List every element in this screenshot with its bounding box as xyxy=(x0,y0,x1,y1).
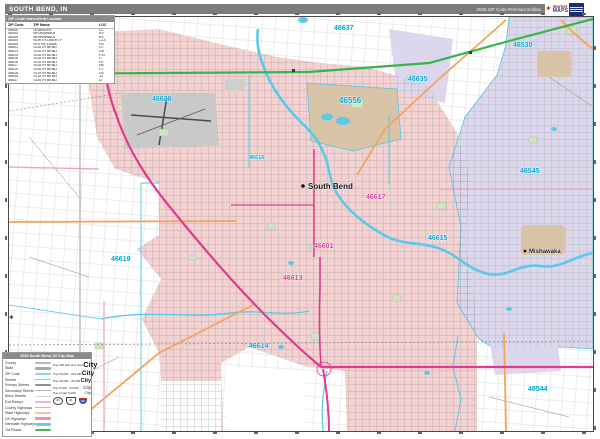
page-title: SOUTH BEND, IN xyxy=(9,6,68,13)
primary-streets-swatch xyxy=(35,384,51,386)
state-highways-swatch xyxy=(35,412,51,415)
us-highways-swatch xyxy=(35,417,51,420)
edition-label: 2026 ZIP Code Premium Edition xyxy=(477,7,541,12)
zip-index-row: 46637SOUTH BENDI2 xyxy=(6,79,114,83)
zip-line-swatch xyxy=(35,373,51,376)
state-highway-shield-icon: 23 xyxy=(53,397,63,405)
map-legend: 2026 South Bend, IN City Map County Stat… xyxy=(2,352,92,437)
streets-swatch xyxy=(35,379,51,380)
minor-streets-swatch xyxy=(35,396,51,397)
highway-shield-samples: 23 31 80 xyxy=(53,397,91,405)
county-line-swatch xyxy=(35,362,51,364)
zip-label-46617: 46617 xyxy=(366,194,386,201)
legend-city-samples: Pop 250,000 and OverCity Pop 50,000 - 24… xyxy=(53,360,91,433)
zip-label-46613: 46613 xyxy=(283,275,303,282)
frame-ticks-right xyxy=(594,16,596,430)
rural-white-cutout xyxy=(225,369,305,431)
population-class: Pop 25,000 - 49,999City xyxy=(53,378,91,384)
state-line-swatch xyxy=(35,367,51,370)
us-highway-shield-icon: 31 xyxy=(66,397,76,405)
zip-index-panel: ZIP Code Index/Grid Locator ZIP Code ZIP… xyxy=(5,15,115,84)
zip-label-46545: 46545 xyxy=(520,168,540,175)
city-label-mishawaka: Mishawaka xyxy=(529,249,561,255)
zip-label-46637: 46637 xyxy=(334,25,354,32)
map-page: SOUTH BEND, IN 2026 ZIP Code Premium Edi… xyxy=(0,0,600,439)
interstate-highways-swatch xyxy=(36,423,51,426)
zip-label-46616: 46616 xyxy=(249,155,264,161)
zip-label-46619: 46619 xyxy=(111,256,131,263)
zip-label-46530: 46530 xyxy=(513,42,533,49)
campus-tan-patch xyxy=(537,51,571,77)
secondary-streets-swatch xyxy=(35,390,51,391)
city-label-south-bend: South Bend xyxy=(308,182,353,191)
zip-label-46556: 46556 xyxy=(339,96,362,105)
zip-label-46544: 46544 xyxy=(528,386,548,393)
zip-index-table: ZIP Code ZIP Name LOC 46530GRANGERL2 465… xyxy=(6,23,114,82)
population-class: Pop Under 5,000City xyxy=(53,391,91,395)
zip-index-title: ZIP Code Index/Grid Locator xyxy=(6,16,114,22)
population-class: Pop 250,000 and OverCity xyxy=(53,360,91,369)
zip-label-46628: 46628 xyxy=(152,96,172,103)
population-class: Pop 5,000 - 24,999City xyxy=(53,385,91,390)
zip-areas xyxy=(87,17,593,431)
city-dot-south-bend xyxy=(301,184,305,188)
legend-item: Toll Roads xyxy=(5,427,51,433)
logo-star-icon: ✶ xyxy=(545,5,552,13)
zip-label-46601: 46601 xyxy=(314,243,334,250)
industrial-gray-patch xyxy=(225,79,245,91)
zip-label-46614: 46614 xyxy=(249,343,269,350)
interstate-shield-icon: 80 xyxy=(79,398,87,404)
legend-line-samples: County State ZIP Code Streets Primary St… xyxy=(5,360,51,433)
north-arrow-icon: ✦ xyxy=(8,313,15,322)
city-dot-mishawaka xyxy=(524,250,527,253)
population-class: Pop 50,000 - 249,999City xyxy=(53,370,91,377)
exit-ramps-swatch xyxy=(35,401,51,402)
county-highways-swatch xyxy=(35,407,51,409)
zip-label-46635: 46635 xyxy=(408,76,428,83)
toll-roads-swatch xyxy=(35,429,51,432)
zip-label-46615: 46615 xyxy=(428,235,448,242)
